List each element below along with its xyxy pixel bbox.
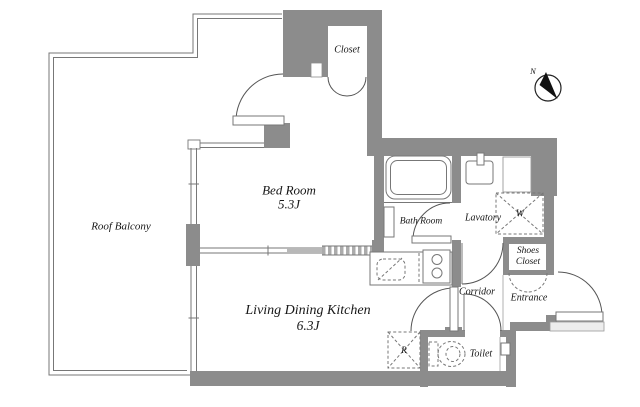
wall-segment	[452, 240, 461, 287]
wall-segment	[378, 138, 557, 156]
faucet-icon	[477, 153, 484, 165]
bedroom-size-label: 5.3J	[278, 198, 300, 213]
entrance-step	[550, 322, 604, 331]
bathroom-label: Bath Room	[400, 217, 442, 228]
toilet-tank	[429, 342, 438, 366]
wall-segment	[531, 156, 557, 196]
toilet-bowl-icon	[438, 342, 465, 367]
wall-segment	[452, 156, 461, 203]
partition-track	[287, 248, 322, 253]
wall-segment	[544, 196, 554, 238]
toilet-control-box	[501, 343, 510, 355]
corridor-label: Corridor	[459, 286, 495, 298]
ldk-label: Living Dining Kitchen	[245, 303, 370, 319]
wall-segment	[186, 224, 200, 266]
lavatory-nook	[503, 157, 531, 192]
balcony-door-leaf	[233, 116, 284, 125]
compass-icon	[535, 72, 561, 101]
toilet-label: Toilet	[470, 348, 492, 360]
bath-counter	[384, 207, 394, 237]
shoes-closet-door-arc	[528, 273, 547, 292]
floor-plan: Closet Bed Room 5.3J Living Dining Kitch…	[0, 0, 640, 407]
closet-door-arc	[328, 77, 347, 96]
balcony-outer-line	[49, 14, 282, 375]
balcony-door-arc	[236, 74, 283, 121]
closet-door-arc	[347, 77, 366, 96]
wall-segment	[322, 26, 328, 77]
closet-label: Closet	[334, 44, 360, 56]
entrance-label: Entrance	[511, 292, 548, 304]
balcony-outline	[49, 14, 282, 375]
refrigerator-label: R	[401, 345, 407, 355]
entrance-door-leaf	[556, 312, 603, 321]
wall-notch	[311, 63, 322, 77]
washer-label: W	[516, 208, 524, 220]
bathroom-door-leaf	[412, 236, 451, 243]
wall-segment	[510, 322, 550, 331]
wall-segment	[367, 26, 382, 156]
kitchen-fixtures	[370, 250, 452, 368]
wall-segment	[190, 371, 516, 386]
shoes-closet-label: Shoes Closet	[505, 246, 551, 268]
wall-segment	[264, 123, 290, 148]
room-partition	[200, 246, 372, 256]
wall-segment	[420, 330, 428, 387]
wall-segment	[500, 330, 516, 337]
bathtub-inner	[391, 161, 447, 195]
toilet-door-arc	[464, 294, 501, 331]
wall-segment	[374, 148, 384, 256]
lavatory-door-arc	[462, 243, 503, 284]
shoes-closet-door-arc	[509, 273, 528, 292]
entrance-door-arc	[558, 272, 602, 316]
compass-north-label: N	[530, 67, 536, 77]
window-jamb	[188, 140, 200, 149]
ldk-door-arc	[411, 288, 454, 331]
toilet-seat	[446, 347, 460, 362]
roof-balcony-label: Roof Balcony	[91, 221, 151, 234]
floor-plan-drawing	[0, 0, 640, 407]
lavatory-label: Lavatory	[465, 212, 501, 224]
ldk-door-leaf	[450, 287, 458, 331]
ldk-size-label: 6.3J	[297, 318, 320, 334]
wall-segment	[283, 10, 382, 26]
